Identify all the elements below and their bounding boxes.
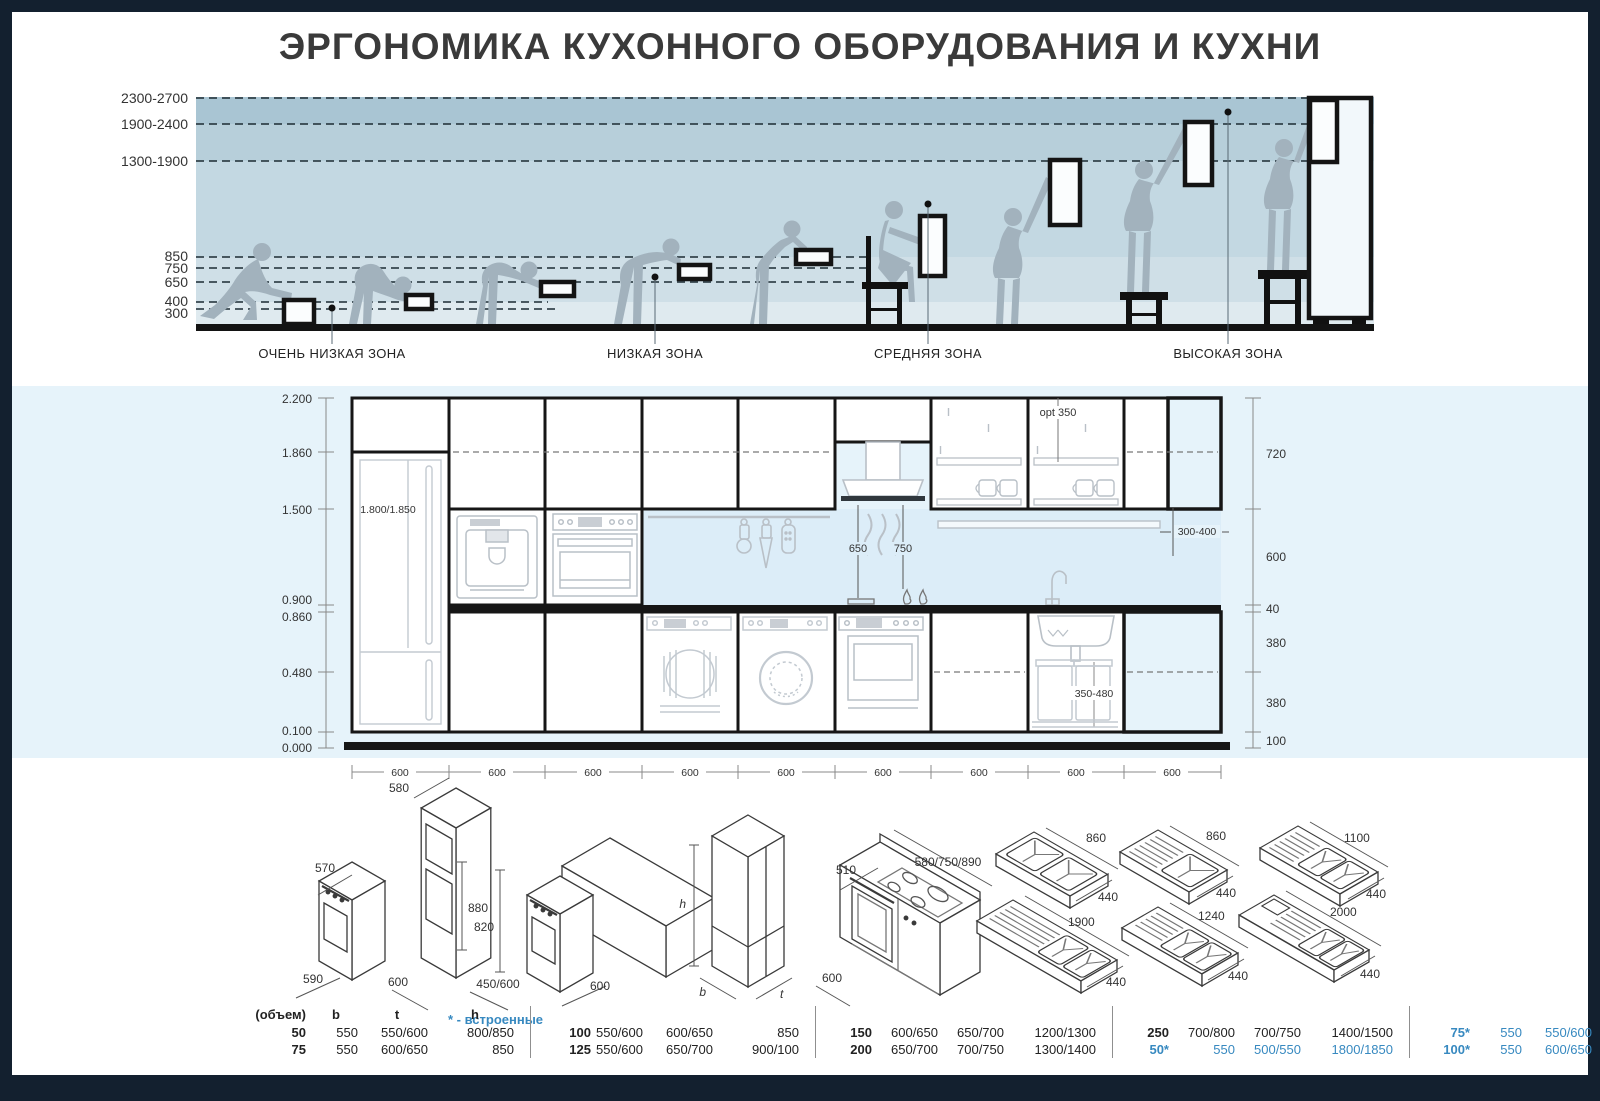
sink-double-two-drainers: 2000 440 <box>1239 891 1381 982</box>
height-label: 650 <box>165 274 189 290</box>
cell-t: 650/700 <box>666 1041 713 1058</box>
dim-cooktop-depth: 510 <box>836 863 856 877</box>
height-label: 1300-1900 <box>121 153 188 169</box>
cell-vol: 75* <box>1450 1024 1470 1041</box>
left-scale-label: 0.860 <box>282 610 312 624</box>
height-label: 300 <box>165 305 189 321</box>
cell-b: 550/600 <box>596 1024 643 1041</box>
sink-double-drainer-2: 1240 440 <box>1122 903 1249 986</box>
table-row: 75 550 600/650 850 <box>262 1041 514 1058</box>
cabinet-top <box>1310 100 1337 162</box>
kitchen-ergonomics-infographic: ЭРГОНОМИКА КУХОННОГО ОБОРУДОВАНИЯ И КУХН… <box>0 0 1600 1101</box>
cell-vol: 125 <box>569 1041 591 1058</box>
right-scale-label: 380 <box>1266 696 1286 710</box>
left-scale-label: 0.100 <box>282 724 312 738</box>
cell-b: 550 <box>1500 1041 1522 1058</box>
box-850 <box>796 250 831 264</box>
cell-t: 600/650 <box>666 1024 713 1041</box>
sink-width: 2000 <box>1330 905 1357 919</box>
module-width: 600 <box>874 767 892 779</box>
header-h: h <box>471 1006 479 1024</box>
left-scale-label: 0.900 <box>282 593 312 607</box>
sink-depth: 440 <box>1106 975 1126 989</box>
table-row-built-in: 50* 550 500/550 1800/1850 <box>1129 1041 1393 1058</box>
cell-h: 850 <box>492 1041 514 1058</box>
table-row: 125 550/600 650/700 900/100 <box>547 1041 799 1058</box>
cell-vol: 100 <box>569 1024 591 1041</box>
dim-fridge-width: b <box>699 985 706 999</box>
height-labels: 2300-2700 1900-2400 1300-1900 850 750 65… <box>121 90 188 321</box>
cell-t: 550/600 <box>381 1024 428 1041</box>
module-width: 600 <box>777 767 795 779</box>
isometric-appliances: 580 570 880 590 600 <box>296 778 1388 1010</box>
cell-b: 550 <box>1213 1041 1235 1058</box>
module-width: 600 <box>1163 767 1181 779</box>
cell-t: 700/750 <box>1254 1024 1301 1041</box>
left-scale-label: 1.500 <box>282 503 312 517</box>
right-scale-label: 100 <box>1266 734 1286 748</box>
module-width: 600 <box>1067 767 1085 779</box>
cell-t: 550/600 <box>1545 1024 1592 1041</box>
dim-under-oven-width: 450/600 <box>476 977 520 991</box>
dim-niche-height: 880 <box>468 901 488 915</box>
cell-b: 550 <box>336 1024 358 1041</box>
table-row: 100 550/600 600/650 850 <box>547 1024 799 1041</box>
cell-vol: 50 <box>292 1024 306 1041</box>
shelf-depth-label: 300-400 <box>1178 526 1217 538</box>
dim-counter-height: 820 <box>474 920 494 934</box>
right-scale-label: 720 <box>1266 447 1286 461</box>
iso-oven-column: 580 570 880 590 600 <box>296 778 491 1010</box>
hood-gas-clearance: 750 <box>894 543 912 555</box>
cell-b: 550 <box>1500 1024 1522 1041</box>
table-group-2: 100 550/600 600/650 850 125 550/600 650/… <box>530 1006 799 1058</box>
cell-t: 600/650 <box>381 1041 428 1058</box>
sink-bowl-drainer: 860 440 <box>1120 826 1239 904</box>
iso-range: 510 580/750/890 600 <box>816 830 992 1006</box>
sink-double-bowl: 860 440 <box>996 828 1118 908</box>
dim-cabinet-width: 600 <box>388 975 408 989</box>
zone-label-high: ВЫСОКАЯ ЗОНА <box>1173 346 1282 361</box>
cell-vol: 75 <box>292 1041 306 1058</box>
height-label: 1900-2400 <box>121 116 188 132</box>
box-650 <box>541 282 574 296</box>
dim-oven-width: 590 <box>303 972 323 986</box>
cabinet-upper <box>1050 160 1080 225</box>
hood-electric-clearance: 650 <box>849 543 867 555</box>
left-scale-label: 0.000 <box>282 741 312 755</box>
sink-depth: 440 <box>1228 969 1248 983</box>
cell-h: 1300/1400 <box>1035 1041 1096 1058</box>
diagram-canvas: 2300-2700 1900-2400 1300-1900 850 750 65… <box>0 0 1600 1101</box>
cell-b: 700/800 <box>1188 1024 1235 1041</box>
sink-depth: 440 <box>1360 967 1380 981</box>
fridge-unit <box>352 452 449 732</box>
zones-diagram: 2300-2700 1900-2400 1300-1900 850 750 65… <box>121 90 1374 361</box>
sink-depth: 440 <box>1098 890 1118 904</box>
cell-h: 900/100 <box>752 1041 799 1058</box>
sink-depth: 440 <box>1216 886 1236 900</box>
sink-width: 860 <box>1086 831 1106 845</box>
countertop <box>449 605 1221 612</box>
cell-h: 1400/1500 <box>1332 1024 1393 1041</box>
table-group-3: 150 600/650 650/700 1200/1300 200 650/70… <box>815 1006 1096 1058</box>
table-group-5: 75* 550 550/600 850/900 100* 550 600/650… <box>1409 1006 1600 1058</box>
cell-vol: 200 <box>850 1041 872 1058</box>
sink-long-double-drainer: 1900 440 <box>977 896 1129 993</box>
cell-h: 850 <box>777 1024 799 1041</box>
box-750 <box>679 265 710 279</box>
cell-t: 500/550 <box>1254 1041 1301 1058</box>
kitchen-elevation: 1.800/1.850 <box>12 386 1588 779</box>
dim-range-oven-width: 600 <box>822 971 842 985</box>
box-floor <box>284 300 314 324</box>
dim-oven-depth: 570 <box>315 861 335 875</box>
table-row: 250 700/800 700/750 1400/1500 <box>1129 1024 1393 1041</box>
table-row-built-in: 75* 550 550/600 850/900 <box>1426 1024 1600 1041</box>
box-400 <box>406 295 432 309</box>
sink-width: 860 <box>1206 829 1226 843</box>
module-width: 600 <box>970 767 988 779</box>
cell-vol: 250 <box>1147 1024 1169 1041</box>
cell-t: 600/650 <box>1545 1041 1592 1058</box>
bottom-dimensions: 600 600 600 600 600 600 600 600 600 <box>352 765 1221 779</box>
sink-width: 1240 <box>1198 909 1225 923</box>
cell-vol: 150 <box>850 1024 872 1041</box>
cell-b: 550/600 <box>596 1041 643 1058</box>
dim-cooktop-widths: 580/750/890 <box>915 855 982 869</box>
table-row: 200 650/700 700/750 1300/1400 <box>832 1041 1096 1058</box>
left-scale-label: 0.480 <box>282 666 312 680</box>
dimension-table: (объем) b t h 50 550 550/600 800/850 75 … <box>262 1006 1522 1058</box>
opt-350-label: opt 350 <box>1040 407 1077 419</box>
left-scale-label: 1.860 <box>282 446 312 460</box>
dim-fridge-height: h <box>679 897 686 911</box>
cell-vol: 50* <box>1149 1041 1169 1058</box>
header-b: b <box>332 1006 340 1024</box>
table-row: 150 600/650 650/700 1200/1300 <box>832 1024 1096 1041</box>
cell-h: 1200/1300 <box>1035 1024 1096 1041</box>
height-label: 2300-2700 <box>121 90 188 106</box>
cell-t: 700/750 <box>957 1041 1004 1058</box>
cabinet-high <box>1185 122 1212 185</box>
cabinet-middle-zone <box>920 216 945 276</box>
left-scale-label: 2.200 <box>282 392 312 406</box>
cell-vol: 100* <box>1443 1041 1470 1058</box>
elevation-floor <box>344 742 1230 750</box>
iso-under-counter-oven: 820 450/600 600 <box>470 838 714 1010</box>
module-width: 600 <box>584 767 602 779</box>
zone-labels: ОЧЕНЬ НИЗКАЯ ЗОНА НИЗКАЯ ЗОНА СРЕДНЯЯ ЗО… <box>258 346 1282 361</box>
fridge-height-label: 1.800/1.850 <box>360 504 416 516</box>
hatched-upper-column <box>1168 398 1221 509</box>
zone-label-low: НИЗКАЯ ЗОНА <box>607 346 703 361</box>
bin-width-label: 350-480 <box>1075 688 1114 700</box>
table-group-4: 250 700/800 700/750 1400/1500 50* 550 50… <box>1112 1006 1393 1058</box>
cell-b: 550 <box>336 1041 358 1058</box>
iso-sinks: 860 440 860 440 <box>977 822 1388 993</box>
header-t: t <box>395 1006 399 1024</box>
right-scale-label: 380 <box>1266 636 1286 650</box>
cell-h: 1800/1850 <box>1332 1041 1393 1058</box>
right-scale-label: 40 <box>1266 602 1280 616</box>
module-width: 600 <box>391 767 409 779</box>
zone-label-middle: СРЕДНЯЯ ЗОНА <box>874 346 982 361</box>
cell-b: 650/700 <box>891 1041 938 1058</box>
cell-t: 650/700 <box>957 1024 1004 1041</box>
table-row-built-in: 100* 550 600/650 900 <box>1426 1041 1600 1058</box>
dim-cabinet-depth: 580 <box>389 781 409 795</box>
dim-under-cabinet-width: 600 <box>590 979 610 993</box>
table-row: 50 550 550/600 800/850 <box>262 1024 514 1041</box>
sink-width: 1900 <box>1068 915 1095 929</box>
module-width: 600 <box>488 767 506 779</box>
zone-label-very-low: ОЧЕНЬ НИЗКАЯ ЗОНА <box>258 346 405 361</box>
right-scale-label: 600 <box>1266 550 1286 564</box>
floor-line <box>196 324 1374 331</box>
module-width: 600 <box>681 767 699 779</box>
cell-b: 600/650 <box>891 1024 938 1041</box>
sink-double-drainer: 1100 440 <box>1260 822 1388 906</box>
cell-h: 800/850 <box>467 1024 514 1041</box>
dim-fridge-depth: t <box>780 987 784 1001</box>
sink-width: 1100 <box>1344 831 1370 845</box>
hood-top-cabinet <box>835 398 931 442</box>
sink-depth: 440 <box>1366 887 1386 901</box>
table-group-1: (объем) b t h 50 550 550/600 800/850 75 … <box>262 1006 514 1058</box>
header-volume: (объем) <box>255 1006 306 1024</box>
